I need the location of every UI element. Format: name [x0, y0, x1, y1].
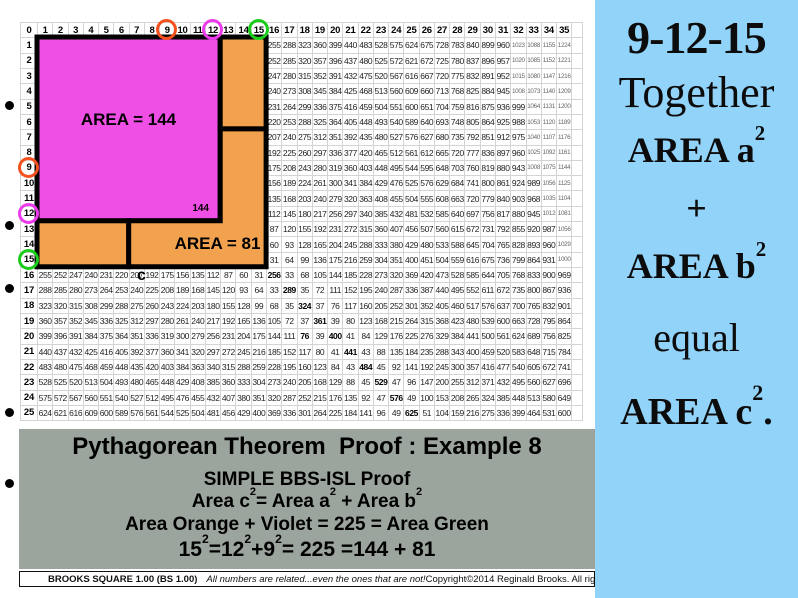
grid-cell: [145, 115, 160, 130]
grid-cell: [145, 54, 160, 69]
grid-cell: 368: [435, 314, 450, 329]
grid-cell: [206, 54, 221, 69]
grid-cell: [99, 253, 114, 268]
grid-cell: 403: [359, 161, 374, 176]
grid-filler-cell: [572, 314, 583, 329]
grid-cell: 391: [69, 329, 84, 344]
grid-cell: 351: [328, 130, 343, 145]
grid-cell: 968: [527, 191, 542, 206]
grid-cell: 51: [420, 406, 435, 421]
grid-cell: 231: [221, 329, 236, 344]
grid-cell: 720: [465, 191, 480, 206]
grid-cell: [69, 222, 84, 237]
grid-cell: 120: [282, 222, 297, 237]
grid-cell: 759: [450, 100, 465, 115]
grid-cell: 208: [450, 391, 465, 406]
grid-cell: 299: [99, 299, 114, 314]
grid-cell: 333: [236, 375, 251, 390]
grid-cell: 68: [267, 299, 282, 314]
grid-cell: 833: [527, 268, 542, 283]
grid-cell: [69, 253, 84, 268]
grid-cell: [175, 100, 190, 115]
grid-cell: 336: [313, 100, 328, 115]
grid-cell: [53, 115, 68, 130]
grid-cell: 627: [542, 375, 557, 390]
grid-cell: 493: [114, 375, 129, 390]
grid-cell: 240: [282, 375, 297, 390]
margin-dot: [5, 479, 14, 488]
grid-col-header: 6: [114, 23, 129, 38]
grid-cell: 451: [420, 253, 435, 268]
grid-cell: 703: [450, 161, 465, 176]
grid-cell: 660: [420, 84, 435, 99]
grid-cell: [38, 191, 53, 206]
grid-cell: 384: [175, 360, 190, 375]
grid-cell: 480: [420, 237, 435, 252]
grid-cell: 840: [496, 191, 511, 206]
grid-cell: [84, 38, 99, 53]
grid-filler-cell: [572, 130, 583, 145]
circled-row-header-15: [18, 249, 39, 270]
grid-cell: 437: [343, 54, 358, 69]
grid-cell: 35: [298, 283, 313, 298]
grid-cell: 175: [160, 268, 175, 283]
grid-cell: [206, 100, 221, 115]
grid-cell: [175, 38, 190, 53]
grid-cell: [130, 222, 145, 237]
grid-filler-cell: [572, 222, 583, 237]
grid-cell: 264: [282, 100, 297, 115]
grid-cell: 520: [496, 345, 511, 360]
grid-cell: 333: [374, 237, 389, 252]
grid-cell: 943: [511, 161, 526, 176]
grid-cell: 45: [359, 375, 374, 390]
grid-cell: 256: [206, 329, 221, 344]
grid-cell: 777: [465, 146, 480, 161]
grid-cell: [160, 176, 175, 191]
grid-row-header: 22: [21, 360, 38, 375]
grid-cell: 420: [420, 268, 435, 283]
grid-col-header: 30: [481, 23, 496, 38]
grid-cell: [175, 191, 190, 206]
grid-cell: 247: [69, 268, 84, 283]
grid-cell: 400: [328, 329, 343, 344]
grid-cell: 168: [313, 375, 328, 390]
grid-col-header: 10: [175, 23, 190, 38]
grid-cell: 165: [236, 314, 251, 329]
grid-cell: [84, 100, 99, 115]
grid-cell: 561: [404, 146, 419, 161]
grid-cell: 616: [404, 69, 419, 84]
grid-cell: 880: [496, 161, 511, 176]
grid-cell: 1152: [542, 54, 557, 69]
grid-cell: 1224: [557, 38, 572, 53]
grid-cell: 1131: [542, 100, 557, 115]
grid-cell: 756: [481, 207, 496, 222]
grid-cell: 47: [374, 391, 389, 406]
grid-cell: 475: [359, 69, 374, 84]
grid-filler-cell: [572, 253, 583, 268]
grid-cell: 891: [481, 69, 496, 84]
grid-cell: [221, 146, 236, 161]
grid-cell: 123: [359, 314, 374, 329]
grid-cell: 507: [420, 222, 435, 237]
grid-cell: 693: [435, 115, 450, 130]
grid-cell: 448: [511, 391, 526, 406]
grid-cell: 399: [511, 406, 526, 421]
grid-cell: 561: [145, 406, 160, 421]
grid-cell: 31: [267, 253, 282, 268]
grid-cell: 861: [496, 176, 511, 191]
grid-cell: [252, 100, 267, 115]
grid-cell: 315: [69, 299, 84, 314]
slide: 0123456789101112131415161718192021222324…: [0, 0, 798, 598]
grid-cell: 779: [481, 191, 496, 206]
grid-cell: [84, 222, 99, 237]
grid-cell: 117: [298, 345, 313, 360]
grid-cell: 899: [481, 38, 496, 53]
grid-filler-cell: [572, 176, 583, 191]
grid-col-header: 3: [69, 23, 84, 38]
grid-cell: 576: [420, 176, 435, 191]
proof-line: 152=122+92= 225 =144 + 81: [19, 537, 595, 563]
grid-cell: 243: [298, 161, 313, 176]
grid-cell: 145: [206, 283, 221, 298]
grid-cell: [206, 69, 221, 84]
grid-cell: [252, 84, 267, 99]
grid-cell: 832: [465, 69, 480, 84]
grid-col-header: 24: [389, 23, 404, 38]
grid-cell: 175: [252, 329, 267, 344]
grid-cell: [221, 176, 236, 191]
grid-filler-cell: [572, 115, 583, 130]
grid-cell: 175: [267, 161, 282, 176]
proof-line: SIMPLE BBS-ISL Proof: [19, 468, 595, 491]
grid-cell: [38, 146, 53, 161]
grid-cell: [160, 38, 175, 53]
grid-cell: 252: [298, 391, 313, 406]
grid-cell: 160: [298, 360, 313, 375]
grid-cell: 483: [359, 38, 374, 53]
grid-col-header: 33: [527, 23, 542, 38]
grid-cell: 39: [313, 329, 328, 344]
grid-cell: 920: [527, 222, 542, 237]
grid-cell: 460: [450, 299, 465, 314]
grid-cell: 805: [465, 115, 480, 130]
grid-cell: 1176: [557, 130, 572, 145]
grid-cell: 624: [511, 329, 526, 344]
grid-cell: 629: [435, 176, 450, 191]
grid-cell: 585: [435, 207, 450, 222]
grid-cell: 276: [420, 329, 435, 344]
grid-cell: 792: [465, 130, 480, 145]
grid-cell: 99: [252, 299, 267, 314]
grid-cell: [145, 69, 160, 84]
grid-cell: 624: [38, 406, 53, 421]
grid-cell: 1104: [557, 191, 572, 206]
grid-cell: 280: [282, 69, 297, 84]
grid-cell: 192: [420, 360, 435, 375]
grid-cell: [175, 207, 190, 222]
grid-row-header: 16: [21, 268, 38, 283]
grid-cell: [160, 161, 175, 176]
grid-cell: 399: [38, 329, 53, 344]
grid-cell: 300: [328, 176, 343, 191]
grid-cell: [84, 253, 99, 268]
grid-cell: [84, 115, 99, 130]
grid-cell: [191, 84, 206, 99]
grid-cell: 240: [374, 283, 389, 298]
grid-cell: 216: [252, 345, 267, 360]
grid-cell: 297: [145, 314, 160, 329]
grid-cell: 360: [160, 345, 175, 360]
grid-cell: 35: [282, 299, 297, 314]
grid-cell: 380: [389, 237, 404, 252]
grid-cell: [69, 69, 84, 84]
grid-cell: 689: [527, 329, 542, 344]
side-line: Together: [619, 64, 775, 122]
grid-cell: 525: [374, 54, 389, 69]
grid-cell: 231: [267, 100, 282, 115]
grid-cell: 273: [267, 375, 282, 390]
grid-cell: 320: [191, 345, 206, 360]
grid-filler-cell: [572, 23, 583, 38]
grid-cell: 475: [69, 360, 84, 375]
grid-cell: [191, 54, 206, 69]
grid-cell: 64: [252, 283, 267, 298]
grid-cell: [130, 130, 145, 145]
grid-cell: [160, 84, 175, 99]
grid-col-header: 32: [511, 23, 526, 38]
grid-cell: 504: [191, 406, 206, 421]
grid-filler-cell: [572, 69, 583, 84]
grid-cell: [252, 253, 267, 268]
grid-cell: 136: [252, 314, 267, 329]
grid-cell: 1025: [527, 146, 542, 161]
grid-cell: [252, 54, 267, 69]
grid-cell: 351: [130, 329, 145, 344]
grid-cell: 391: [328, 69, 343, 84]
grid-cell: [191, 191, 206, 206]
grid-cell: [130, 207, 145, 222]
grid-cell: 576: [481, 299, 496, 314]
grid-cell: 192: [313, 222, 328, 237]
grid-cell: [69, 130, 84, 145]
grid-cell: [84, 191, 99, 206]
grid-col-header: 16: [267, 23, 282, 38]
grid-cell: 324: [481, 391, 496, 406]
grid-cell: 448: [359, 115, 374, 130]
grid-cell: 960: [542, 237, 557, 252]
grid-cell: 528: [450, 268, 465, 283]
grid-cell: 231: [99, 268, 114, 283]
grid-cell: 1107: [542, 130, 557, 145]
grid-filler-cell: [572, 345, 583, 360]
grid-cell: 1035: [542, 191, 557, 206]
grid-cell: 315: [298, 69, 313, 84]
grid-row-header: 17: [21, 283, 38, 298]
grid-cell: 539: [481, 314, 496, 329]
grid-cell: [221, 130, 236, 145]
grid-cell: 184: [343, 406, 358, 421]
grid-cell: 1000: [557, 253, 572, 268]
grid-cell: 437: [53, 345, 68, 360]
grid-cell: 728: [527, 314, 542, 329]
grid-cell: 765: [496, 237, 511, 252]
grid-cell: [130, 161, 145, 176]
grid-cell: 408: [191, 375, 206, 390]
grid-cell: 1073: [527, 84, 542, 99]
grid-cell: 396: [53, 329, 68, 344]
grid-cell: 493: [374, 115, 389, 130]
grid-cell: 532: [420, 207, 435, 222]
grid-cell: 152: [343, 283, 358, 298]
grid-cell: 340: [206, 360, 221, 375]
grid-row-header: 6: [21, 115, 38, 130]
grid-cell: 312: [313, 130, 328, 145]
grid-cell: [130, 54, 145, 69]
grid-cell: 741: [465, 176, 480, 191]
grid-cell: 288: [236, 360, 251, 375]
grid-cell: 819: [481, 161, 496, 176]
grid-cell: 387: [420, 283, 435, 298]
grid-cell: [114, 191, 129, 206]
grid-cell: 696: [557, 375, 572, 390]
grid-cell: 145: [282, 207, 297, 222]
grid-row-header: 7: [21, 130, 38, 145]
grid-cell: 799: [511, 253, 526, 268]
grid-cell: 468: [359, 84, 374, 99]
grid-cell: 240: [267, 84, 282, 99]
grid-cell: 576: [130, 406, 145, 421]
grid-cell: 135: [267, 191, 282, 206]
grid-cell: 697: [465, 207, 480, 222]
grid-cell: 560: [527, 375, 542, 390]
grid-cell: 272: [221, 345, 236, 360]
grid-cell: [130, 191, 145, 206]
grid-cell: 136: [313, 253, 328, 268]
grid-cell: [175, 237, 190, 252]
grid-cell: 168: [374, 314, 389, 329]
grid-cell: 207: [267, 130, 282, 145]
grid-cell: [69, 191, 84, 206]
grid-cell: 792: [496, 222, 511, 237]
grid-cell: [130, 176, 145, 191]
grid-cell: [175, 130, 190, 145]
grid-cell: 216: [343, 253, 358, 268]
grid-col-header: 17: [282, 23, 297, 38]
grid-cell: 369: [267, 406, 282, 421]
grid-cell: [114, 222, 129, 237]
grid-cell: 185: [267, 345, 282, 360]
grid-cell: 392: [343, 130, 358, 145]
grid-cell: [252, 146, 267, 161]
grid-cell: [221, 54, 236, 69]
grid-cell: 903: [511, 191, 526, 206]
grid-cell: [38, 38, 53, 53]
grid-cell: 455: [389, 191, 404, 206]
grid-cell: [130, 115, 145, 130]
grid-cell: [236, 253, 251, 268]
grid-cell: 208: [282, 161, 297, 176]
grid-cell: 144: [328, 268, 343, 283]
grid-cell: 384: [84, 329, 99, 344]
grid-cell: 255: [38, 268, 53, 283]
grid-cell: 795: [542, 314, 557, 329]
grid-cell: [53, 69, 68, 84]
grid-cell: [130, 100, 145, 115]
grid-cell: 1080: [527, 69, 542, 84]
grid-cell: 735: [450, 130, 465, 145]
grid-cell: 700: [511, 299, 526, 314]
grid-cell: 513: [84, 375, 99, 390]
grid-cell: 423: [450, 314, 465, 329]
grid-col-header: 23: [374, 23, 389, 38]
grid-col-header: 2: [53, 23, 68, 38]
grid-cell: 816: [465, 100, 480, 115]
grid-cell: 360: [221, 375, 236, 390]
grid-cell: [38, 176, 53, 191]
grid-cell: [114, 100, 129, 115]
grid-cell: 297: [313, 146, 328, 161]
grid-cell: 396: [328, 54, 343, 69]
grid-cell: 352: [420, 299, 435, 314]
grid-filler-cell: [572, 146, 583, 161]
grid-cell: [114, 253, 129, 268]
grid-cell: 47: [389, 375, 404, 390]
grid-cell: [99, 69, 114, 84]
grid-cell: [252, 69, 267, 84]
grid-cell: 192: [221, 314, 236, 329]
grid-cell: 448: [374, 161, 389, 176]
grid-cell: [221, 207, 236, 222]
grid-cell: 288: [359, 237, 374, 252]
grid-col-header: 5: [99, 23, 114, 38]
grid-col-header: 13: [221, 23, 236, 38]
grid-cell: [38, 130, 53, 145]
grid-cell: 559: [450, 253, 465, 268]
proof-panel: Pythagorean Theorem Proof : Example 8 SI…: [19, 429, 595, 569]
grid-cell: 300: [175, 329, 190, 344]
grid-cell: [69, 100, 84, 115]
grid-cell: 289: [282, 283, 297, 298]
grid-cell: 945: [496, 84, 511, 99]
grid-cell: 775: [450, 69, 465, 84]
grid-cell: 675: [420, 38, 435, 53]
grid-col-header: 18: [298, 23, 313, 38]
grid-cell: [84, 130, 99, 145]
grid-cell: 111: [282, 329, 297, 344]
grid-cell: 480: [53, 360, 68, 375]
grid-cell: 225: [404, 329, 419, 344]
grid-cell: 600: [99, 406, 114, 421]
grid-cell: 231: [328, 222, 343, 237]
grid-cell: 1056: [542, 176, 557, 191]
grid-cell: 315: [420, 314, 435, 329]
grid-cell: 512: [145, 391, 160, 406]
grid-cell: [236, 69, 251, 84]
grid-cell: 936: [557, 283, 572, 298]
grid-cell: 243: [160, 299, 175, 314]
grid-filler-cell: [572, 283, 583, 298]
grid-cell: 455: [191, 391, 206, 406]
grid-cell: 288: [114, 299, 129, 314]
grid-cell: 205: [374, 299, 389, 314]
grid-cell: 87: [267, 222, 282, 237]
grid-col-header: 26: [420, 23, 435, 38]
grid-cell: [114, 54, 129, 69]
grid-cell: 720: [435, 69, 450, 84]
